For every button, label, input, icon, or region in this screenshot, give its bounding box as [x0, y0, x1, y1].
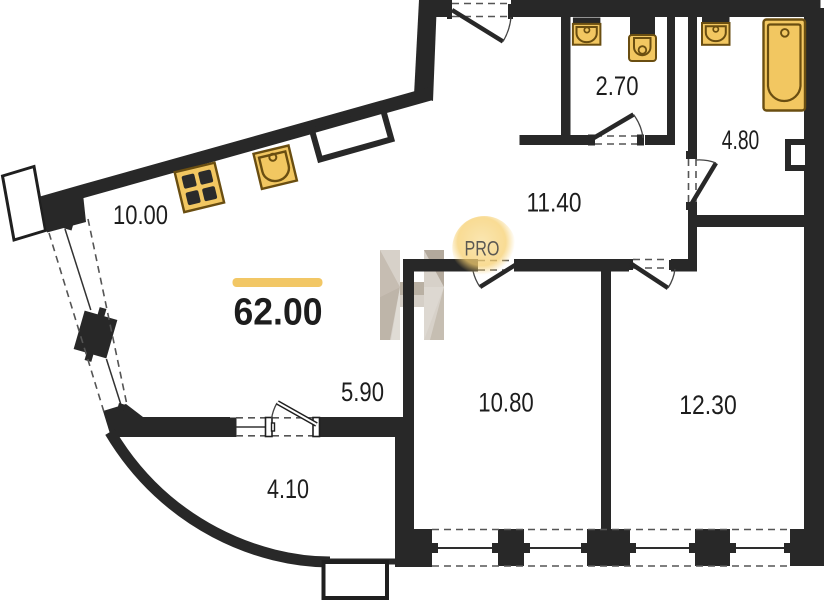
svg-text:11.40: 11.40 [527, 188, 582, 218]
svg-text:4.80: 4.80 [722, 125, 760, 155]
svg-text:12.30: 12.30 [679, 390, 737, 420]
svg-text:PRO: PRO [465, 237, 500, 261]
svg-text:10.00: 10.00 [113, 200, 168, 230]
svg-text:5.90: 5.90 [341, 377, 384, 407]
svg-text:62.00: 62.00 [234, 292, 323, 334]
svg-text:10.80: 10.80 [478, 387, 534, 417]
svg-text:4.10: 4.10 [267, 474, 309, 504]
svg-text:2.70: 2.70 [596, 71, 639, 101]
